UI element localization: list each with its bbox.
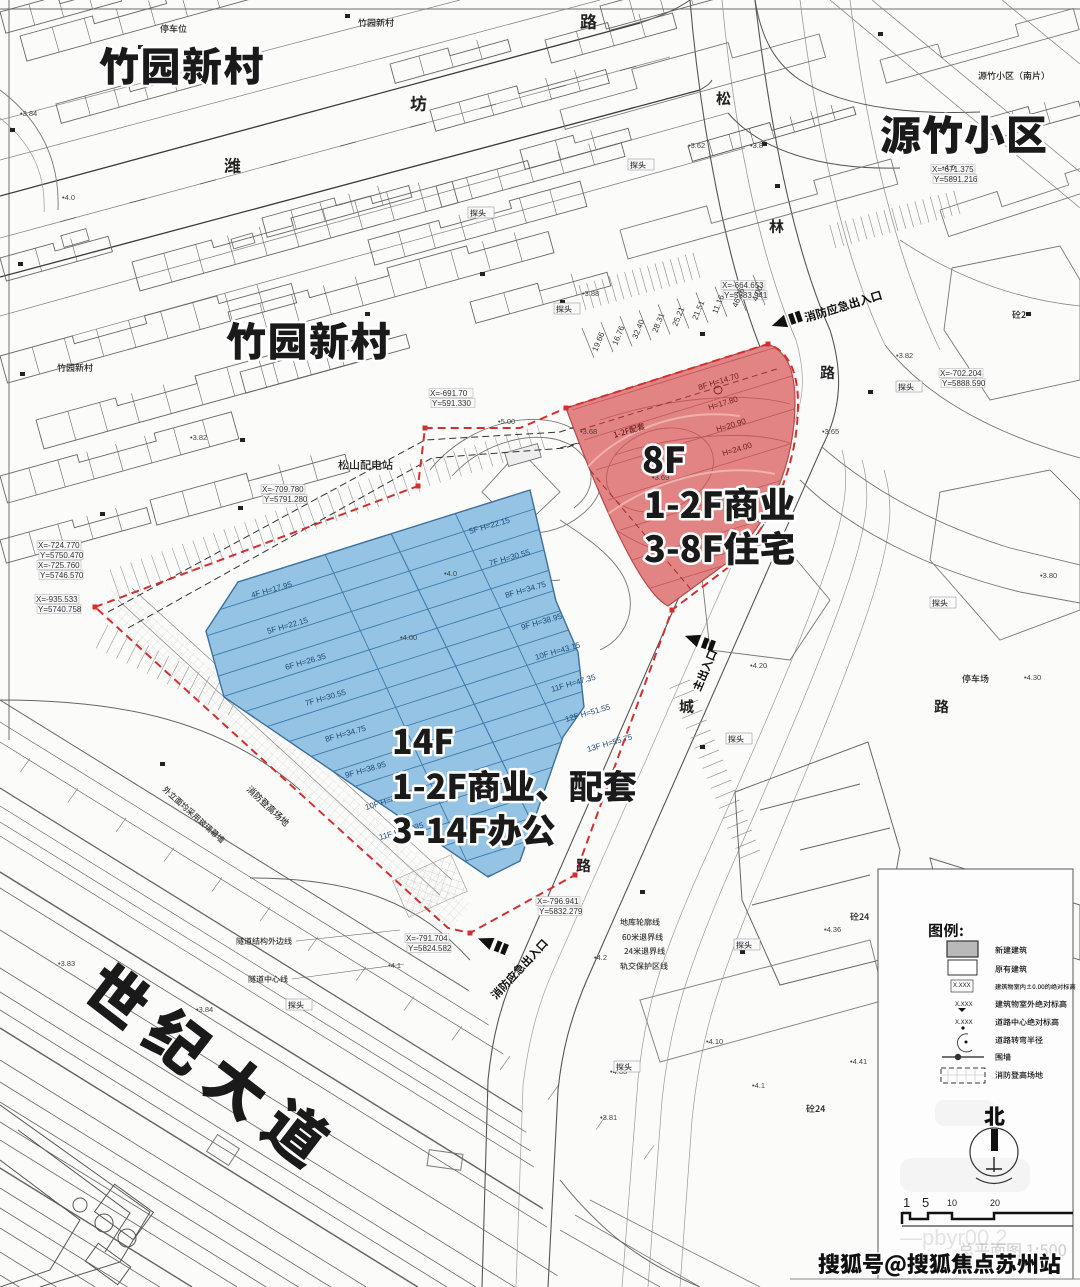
svg-text:•3.83: •3.83 bbox=[58, 959, 75, 968]
svg-text:•4.0: •4.0 bbox=[62, 193, 75, 202]
svg-text:•4.1: •4.1 bbox=[752, 1081, 765, 1090]
svg-text:•4.41: •4.41 bbox=[850, 1057, 867, 1066]
svg-text:5: 5 bbox=[922, 1195, 929, 1210]
svg-text:Y=591.330: Y=591.330 bbox=[432, 399, 471, 408]
svg-text:X=-791.704: X=-791.704 bbox=[406, 934, 448, 943]
svg-text:•3.62: •3.62 bbox=[688, 141, 705, 150]
svg-text:•3.84: •3.84 bbox=[20, 109, 37, 118]
svg-text:X.XXX: X.XXX bbox=[953, 983, 971, 989]
svg-text:•3.80: •3.80 bbox=[1040, 571, 1057, 580]
svg-text:•3.84: •3.84 bbox=[196, 1005, 213, 1014]
svg-text:•4.36: •4.36 bbox=[824, 925, 841, 934]
svg-text:Y=5891.216: Y=5891.216 bbox=[934, 175, 978, 184]
svg-text:X.XXX: X.XXX bbox=[955, 1002, 973, 1008]
svg-text:•3.81: •3.81 bbox=[600, 1113, 617, 1122]
svg-text:X=-725.760: X=-725.760 bbox=[38, 561, 80, 570]
svg-text:•4.2: •4.2 bbox=[594, 953, 607, 962]
svg-text:10: 10 bbox=[947, 1198, 957, 1208]
svg-text:1: 1 bbox=[903, 1195, 910, 1210]
svg-text:•4.20: •4.20 bbox=[750, 661, 767, 670]
svg-text:•3.82: •3.82 bbox=[190, 433, 207, 442]
svg-text:•3.65: •3.65 bbox=[822, 427, 839, 436]
svg-text:X=-935.533: X=-935.533 bbox=[36, 595, 78, 604]
svg-text:20: 20 bbox=[990, 1198, 1000, 1208]
svg-text:X=-691.70: X=-691.70 bbox=[430, 389, 468, 398]
svg-text:•4.10: •4.10 bbox=[706, 1037, 723, 1046]
svg-text:•4.0: •4.0 bbox=[444, 569, 457, 578]
svg-text:Y=5888.590: Y=5888.590 bbox=[942, 379, 986, 388]
svg-text:•3.88: •3.88 bbox=[582, 289, 599, 298]
svg-text:X=-724.770: X=-724.770 bbox=[38, 541, 80, 550]
svg-text:Y=5832.279: Y=5832.279 bbox=[539, 907, 583, 916]
svg-text:•3.82: •3.82 bbox=[896, 351, 913, 360]
svg-text:•4.30: •4.30 bbox=[1024, 673, 1041, 682]
svg-text:•4.00: •4.00 bbox=[400, 633, 417, 642]
svg-text:•4.0: •4.0 bbox=[942, 163, 955, 172]
svg-text:Y=5740.758: Y=5740.758 bbox=[38, 605, 82, 614]
svg-text:•5.00: •5.00 bbox=[498, 417, 515, 426]
svg-text:X.XXX: X.XXX bbox=[955, 1020, 973, 1026]
svg-text:Y=5824.582: Y=5824.582 bbox=[408, 944, 452, 953]
svg-text:X=-709.780: X=-709.780 bbox=[262, 485, 304, 494]
svg-text:•3.8: •3.8 bbox=[750, 141, 763, 150]
svg-text:X=-796.941: X=-796.941 bbox=[537, 897, 579, 906]
svg-text:Y=5791.280: Y=5791.280 bbox=[264, 495, 308, 504]
svg-text:—pbyr00.2: —pbyr00.2 bbox=[900, 1225, 1008, 1250]
svg-text:Y=5750.470: Y=5750.470 bbox=[40, 551, 84, 560]
svg-text:•3.68: •3.68 bbox=[580, 427, 597, 436]
svg-text:X=-702.204: X=-702.204 bbox=[940, 369, 982, 378]
svg-text:Y=5746.570: Y=5746.570 bbox=[40, 571, 84, 580]
